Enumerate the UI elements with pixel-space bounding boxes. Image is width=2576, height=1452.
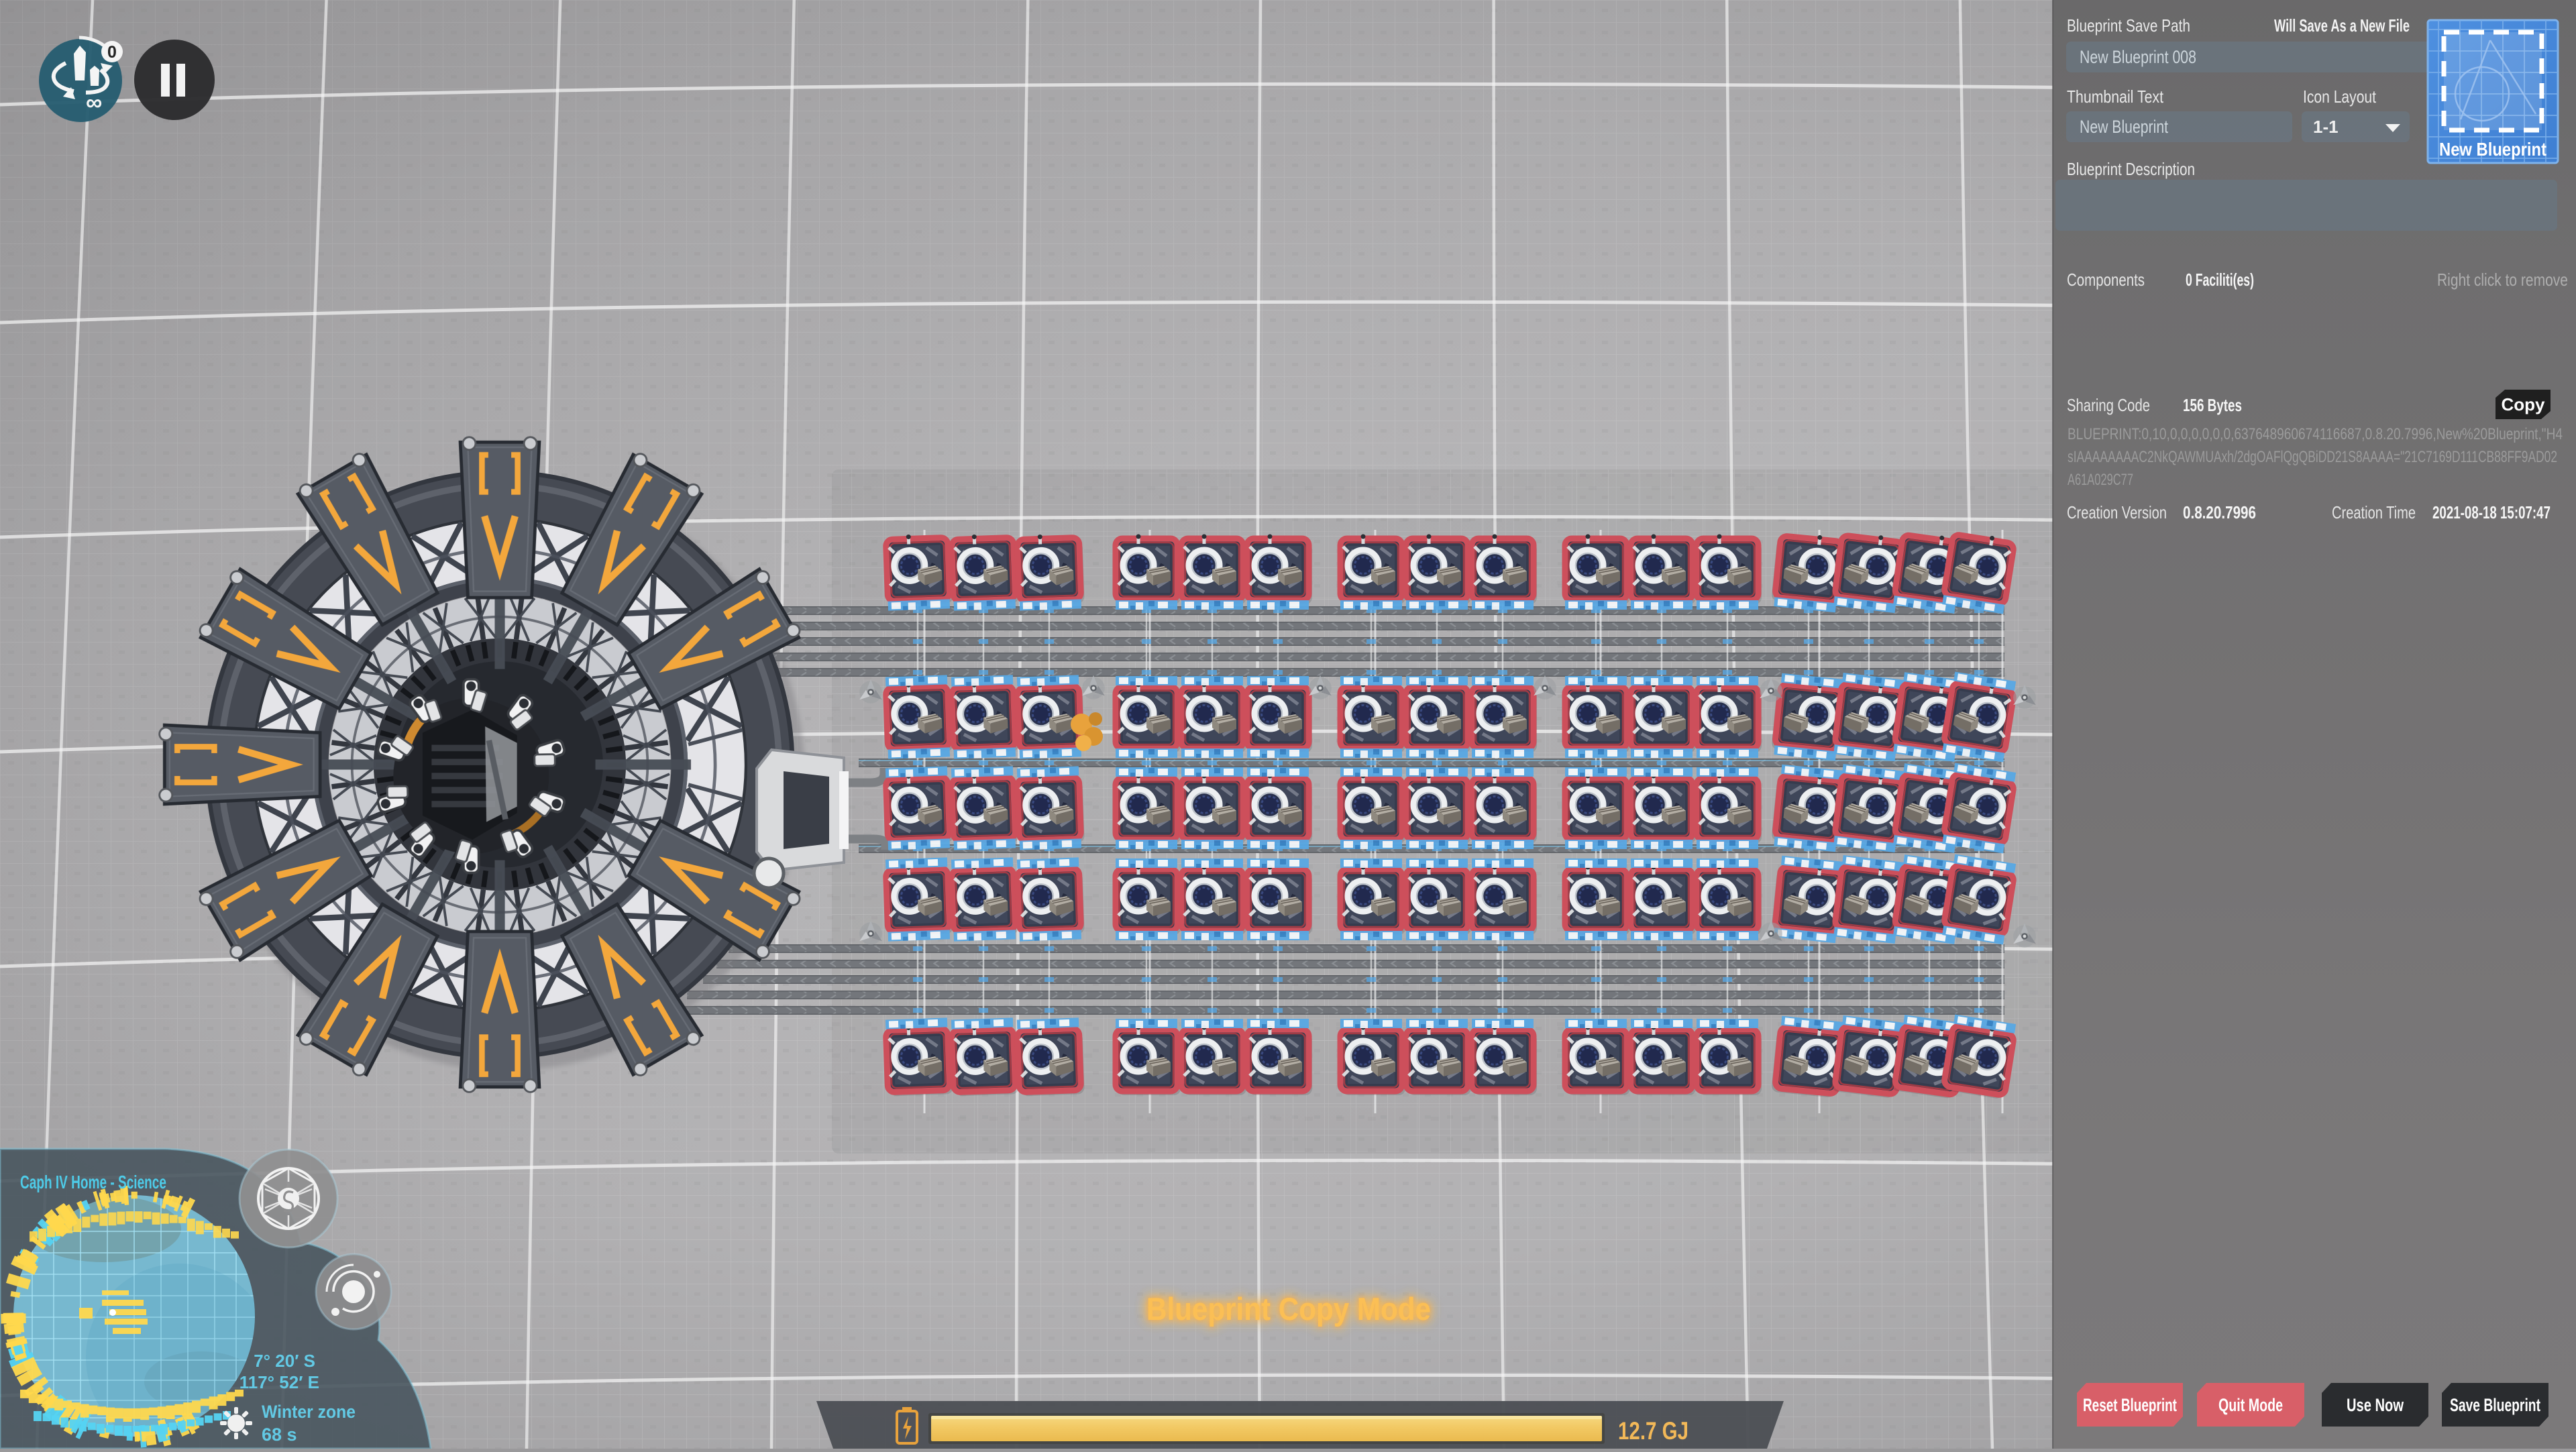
svg-text:0: 0 (107, 43, 117, 62)
svg-text:Use Now: Use Now (2347, 1395, 2404, 1415)
svg-text:Right click to remove: Right click to remove (2437, 270, 2568, 290)
svg-text:12.7 GJ: 12.7 GJ (1618, 1417, 1688, 1445)
svg-text:Winter zone: Winter zone (262, 1402, 356, 1422)
svg-text:Sharing Code: Sharing Code (2067, 395, 2150, 415)
svg-text:Quit Mode: Quit Mode (2218, 1395, 2283, 1415)
svg-text:Components: Components (2067, 270, 2145, 290)
svg-text:7° 20′ S: 7° 20′ S (254, 1351, 315, 1371)
svg-text:∞: ∞ (86, 90, 102, 115)
svg-text:Icon Layout: Icon Layout (2303, 87, 2377, 107)
svg-text:Blueprint Save Path: Blueprint Save Path (2067, 15, 2190, 36)
svg-text:156 Bytes: 156 Bytes (2183, 395, 2242, 415)
svg-text:Caph IV Home - Science: Caph IV Home - Science (20, 1172, 166, 1192)
svg-text:117° 52′ E: 117° 52′ E (239, 1372, 319, 1392)
svg-text:BLUEPRINT:0,10,0,0,0,0,0,0,637: BLUEPRINT:0,10,0,0,0,0,0,0,6376489606741… (2068, 425, 2563, 443)
svg-text:0 Faciliti(es): 0 Faciliti(es) (2186, 270, 2254, 290)
svg-text:0.8.20.7996: 0.8.20.7996 (2183, 502, 2256, 522)
svg-text:Save Blueprint: Save Blueprint (2450, 1395, 2540, 1415)
svg-text:1-1: 1-1 (2313, 117, 2339, 137)
svg-text:68 s: 68 s (262, 1425, 297, 1445)
svg-text:Thumbnail Text: Thumbnail Text (2067, 87, 2164, 107)
svg-text:A61A029C77: A61A029C77 (2068, 471, 2133, 489)
svg-text:2021-08-18 15:07:47: 2021-08-18 15:07:47 (2432, 502, 2551, 522)
svg-text:sIAAAAAAAAC2NkQAWMUAxh/2dgOAFl: sIAAAAAAAAC2NkQAWMUAxh/2dgOAFlQgQBiDD21S… (2068, 448, 2557, 466)
svg-text:Copy: Copy (2502, 394, 2546, 414)
svg-text:Blueprint Copy Mode: Blueprint Copy Mode (1146, 1291, 1431, 1327)
svg-text:Creation Time: Creation Time (2332, 502, 2416, 522)
svg-text:Blueprint Description: Blueprint Description (2067, 159, 2195, 179)
svg-text:New Blueprint 008: New Blueprint 008 (2080, 47, 2196, 67)
svg-text:Will Save As a New File: Will Save As a New File (2274, 15, 2410, 36)
svg-text:New Blueprint: New Blueprint (2080, 117, 2168, 137)
svg-text:New Blueprint: New Blueprint (2439, 139, 2546, 160)
svg-text:Reset Blueprint: Reset Blueprint (2083, 1395, 2177, 1415)
svg-text:Creation Version: Creation Version (2067, 502, 2167, 522)
